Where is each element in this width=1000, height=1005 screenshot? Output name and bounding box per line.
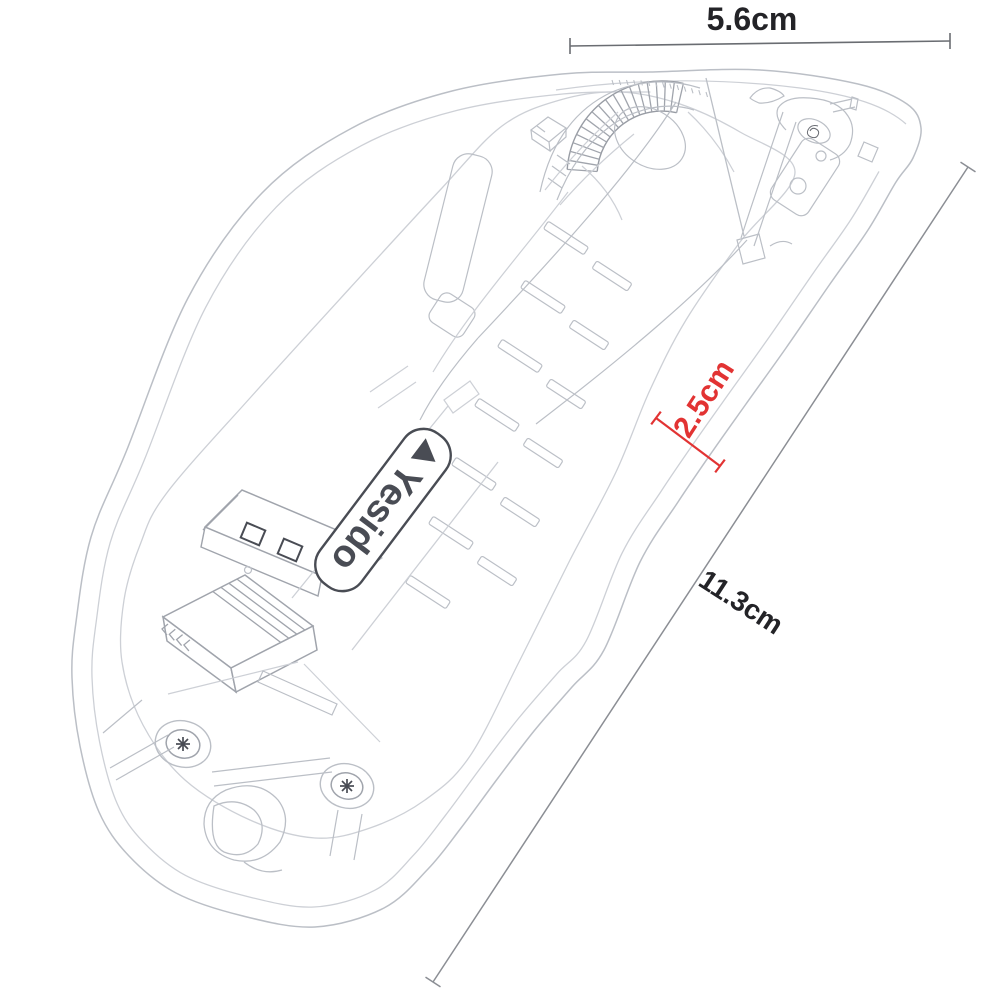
- svg-text:5.6cm: 5.6cm: [707, 1, 798, 37]
